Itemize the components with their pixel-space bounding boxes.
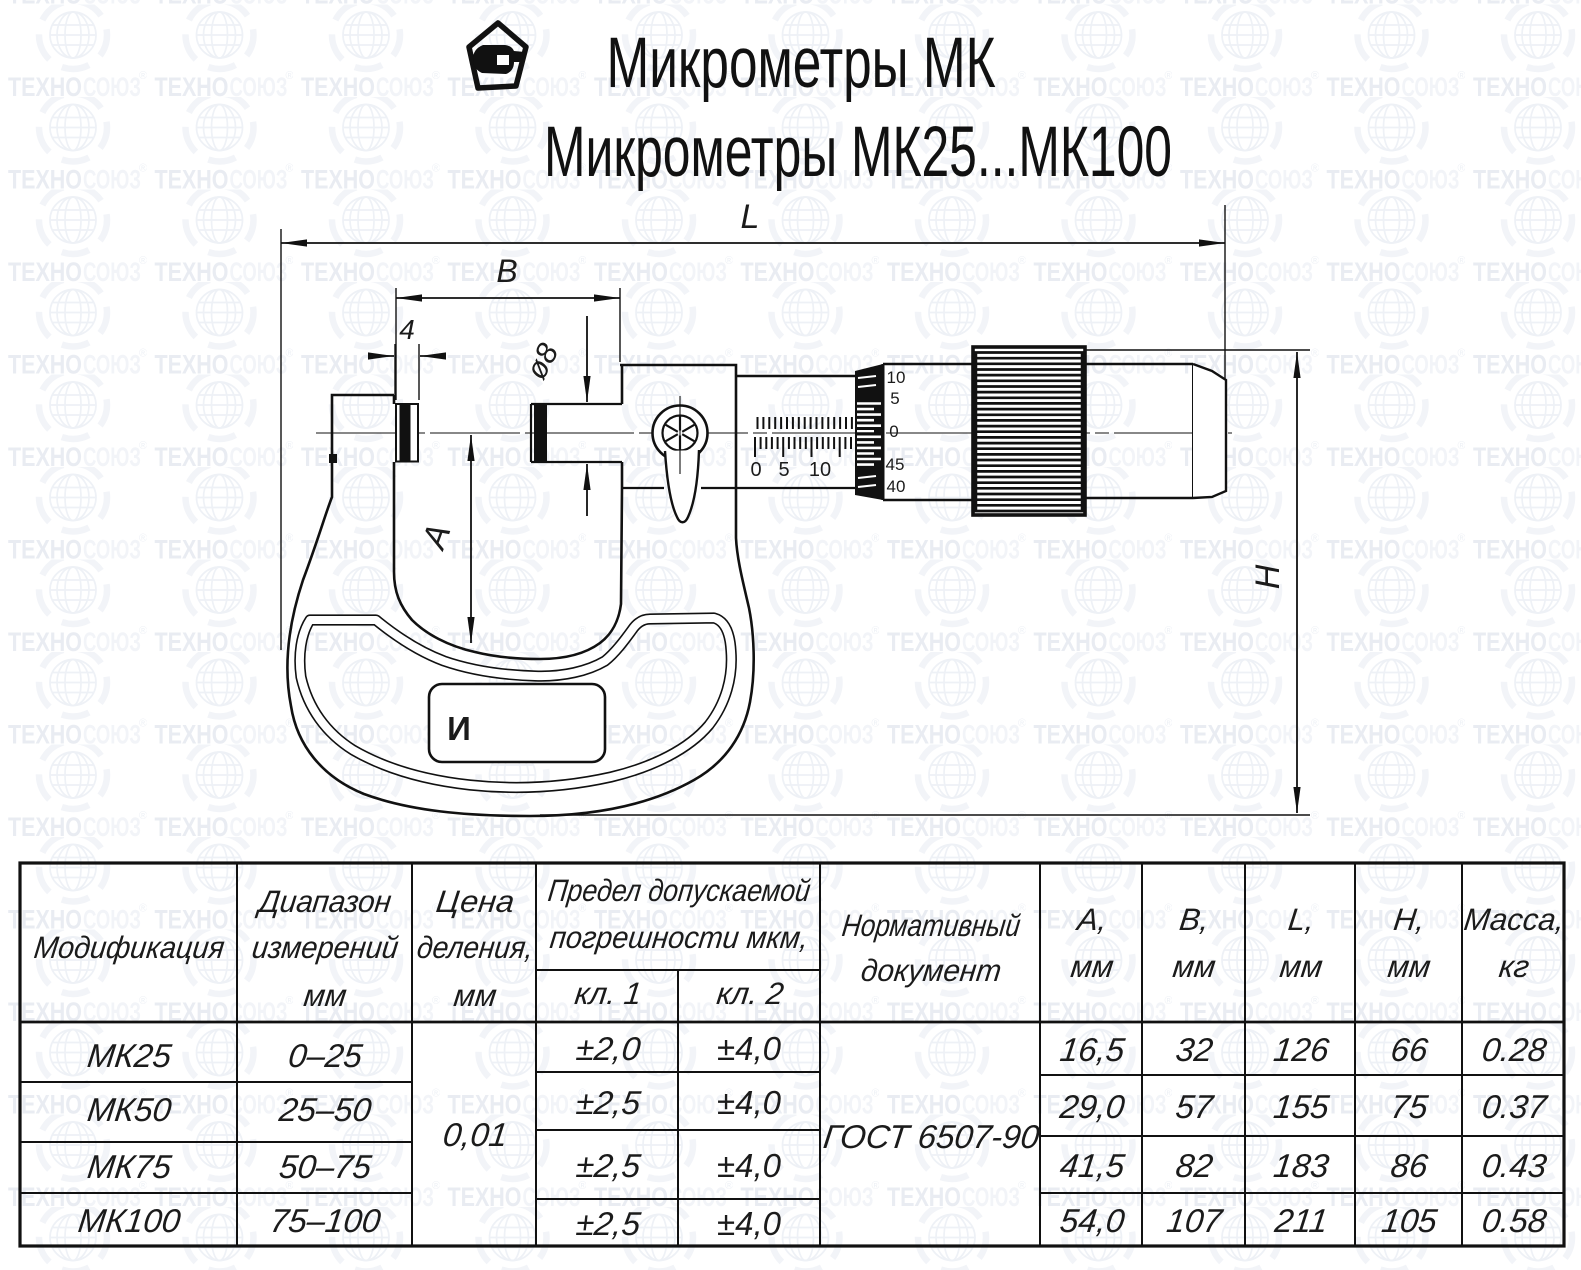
svg-text:29,0: 29,0 [1057,1089,1127,1126]
svg-text:16,5: 16,5 [1058,1032,1127,1069]
svg-text:126: 126 [1271,1032,1331,1069]
svg-text:документ: документ [859,953,1003,988]
svg-text:кл. 2: кл. 2 [715,976,786,1011]
svg-text:L,: L, [1286,902,1316,937]
svg-text:10: 10 [887,368,906,387]
svg-text:МК75: МК75 [85,1149,174,1186]
svg-text:±2,5: ±2,5 [574,1085,643,1122]
svg-text:41,5: 41,5 [1058,1148,1127,1185]
svg-text:±4,0: ±4,0 [717,1147,782,1184]
svg-text:И: И [447,710,471,747]
svg-text:Нормативный: Нормативный [840,908,1022,943]
svg-text:L: L [741,198,760,236]
svg-text:40: 40 [887,477,906,496]
svg-text:±2,5: ±2,5 [574,1148,643,1185]
svg-text:Микрометры МК25...МК100: Микрометры МК25...МК100 [544,113,1172,192]
svg-text:Предел допускаемой: Предел допускаемой [546,873,812,908]
svg-text:±4,0: ±4,0 [717,1205,782,1242]
svg-text:4: 4 [399,314,415,345]
svg-text:мм: мм [1069,949,1116,984]
svg-text:5: 5 [778,459,789,481]
svg-text:54,0: 54,0 [1058,1203,1127,1240]
svg-text:деления,: деления, [415,930,535,965]
svg-text:211: 211 [1272,1203,1330,1240]
svg-text:0.58: 0.58 [1480,1203,1549,1240]
svg-text:10: 10 [809,459,831,481]
svg-text:0: 0 [889,422,898,441]
svg-text:мм: мм [1386,949,1433,984]
svg-text:±2,5: ±2,5 [574,1206,643,1243]
svg-text:мм: мм [452,978,499,1013]
svg-text:Цена: Цена [434,884,516,919]
svg-text:Диапазон: Диапазон [254,884,393,919]
svg-text:мм: мм [1171,949,1218,984]
svg-text:±4,0: ±4,0 [717,1084,782,1121]
svg-text:±2,0: ±2,0 [574,1031,643,1068]
svg-text:Н,: Н, [1392,902,1427,937]
svg-text:А,: А, [1074,902,1110,937]
svg-text:мм: мм [1278,949,1325,984]
svg-text:0.28: 0.28 [1480,1032,1549,1069]
svg-text:МК50: МК50 [85,1092,174,1129]
svg-text:183: 183 [1271,1148,1331,1185]
svg-text:В: В [496,253,517,289]
svg-text:погрешности мкм,: погрешности мкм, [548,920,810,955]
svg-text:кг: кг [1497,949,1531,984]
svg-text:Модификация: Модификация [32,930,226,965]
svg-text:75: 75 [1389,1089,1431,1126]
svg-text:82: 82 [1174,1148,1215,1185]
svg-text:Микрометры МК: Микрометры МК [607,24,996,103]
svg-text:МК100: МК100 [76,1203,183,1240]
svg-text:0–25: 0–25 [286,1038,364,1075]
svg-text:0.43: 0.43 [1480,1148,1549,1185]
svg-text:66: 66 [1389,1032,1431,1069]
svg-text:0,01: 0,01 [441,1117,510,1154]
svg-text:107: 107 [1164,1203,1225,1240]
svg-text:±4,0: ±4,0 [717,1030,782,1067]
svg-text:57: 57 [1174,1089,1217,1126]
svg-text:50–75: 50–75 [277,1149,374,1186]
svg-text:32: 32 [1174,1032,1215,1069]
svg-text:кл. 1: кл. 1 [573,976,644,1011]
svg-text:мм: мм [302,978,349,1013]
svg-text:Н: Н [1249,564,1287,589]
svg-text:ГОСТ 6507-90: ГОСТ 6507-90 [821,1119,1042,1156]
svg-text:В,: В, [1177,902,1211,937]
svg-text:0.37: 0.37 [1480,1089,1550,1126]
svg-text:25–50: 25–50 [276,1092,374,1129]
svg-text:105: 105 [1379,1203,1439,1240]
svg-text:Масса,: Масса, [1462,902,1567,937]
svg-text:5: 5 [890,389,899,408]
svg-text:86: 86 [1389,1148,1431,1185]
svg-text:измерений: измерений [250,930,400,965]
svg-text:75–100: 75–100 [268,1203,383,1240]
svg-text:0: 0 [750,459,761,481]
svg-text:45: 45 [886,455,905,474]
svg-text:МК25: МК25 [85,1038,174,1075]
svg-text:155: 155 [1271,1089,1331,1126]
